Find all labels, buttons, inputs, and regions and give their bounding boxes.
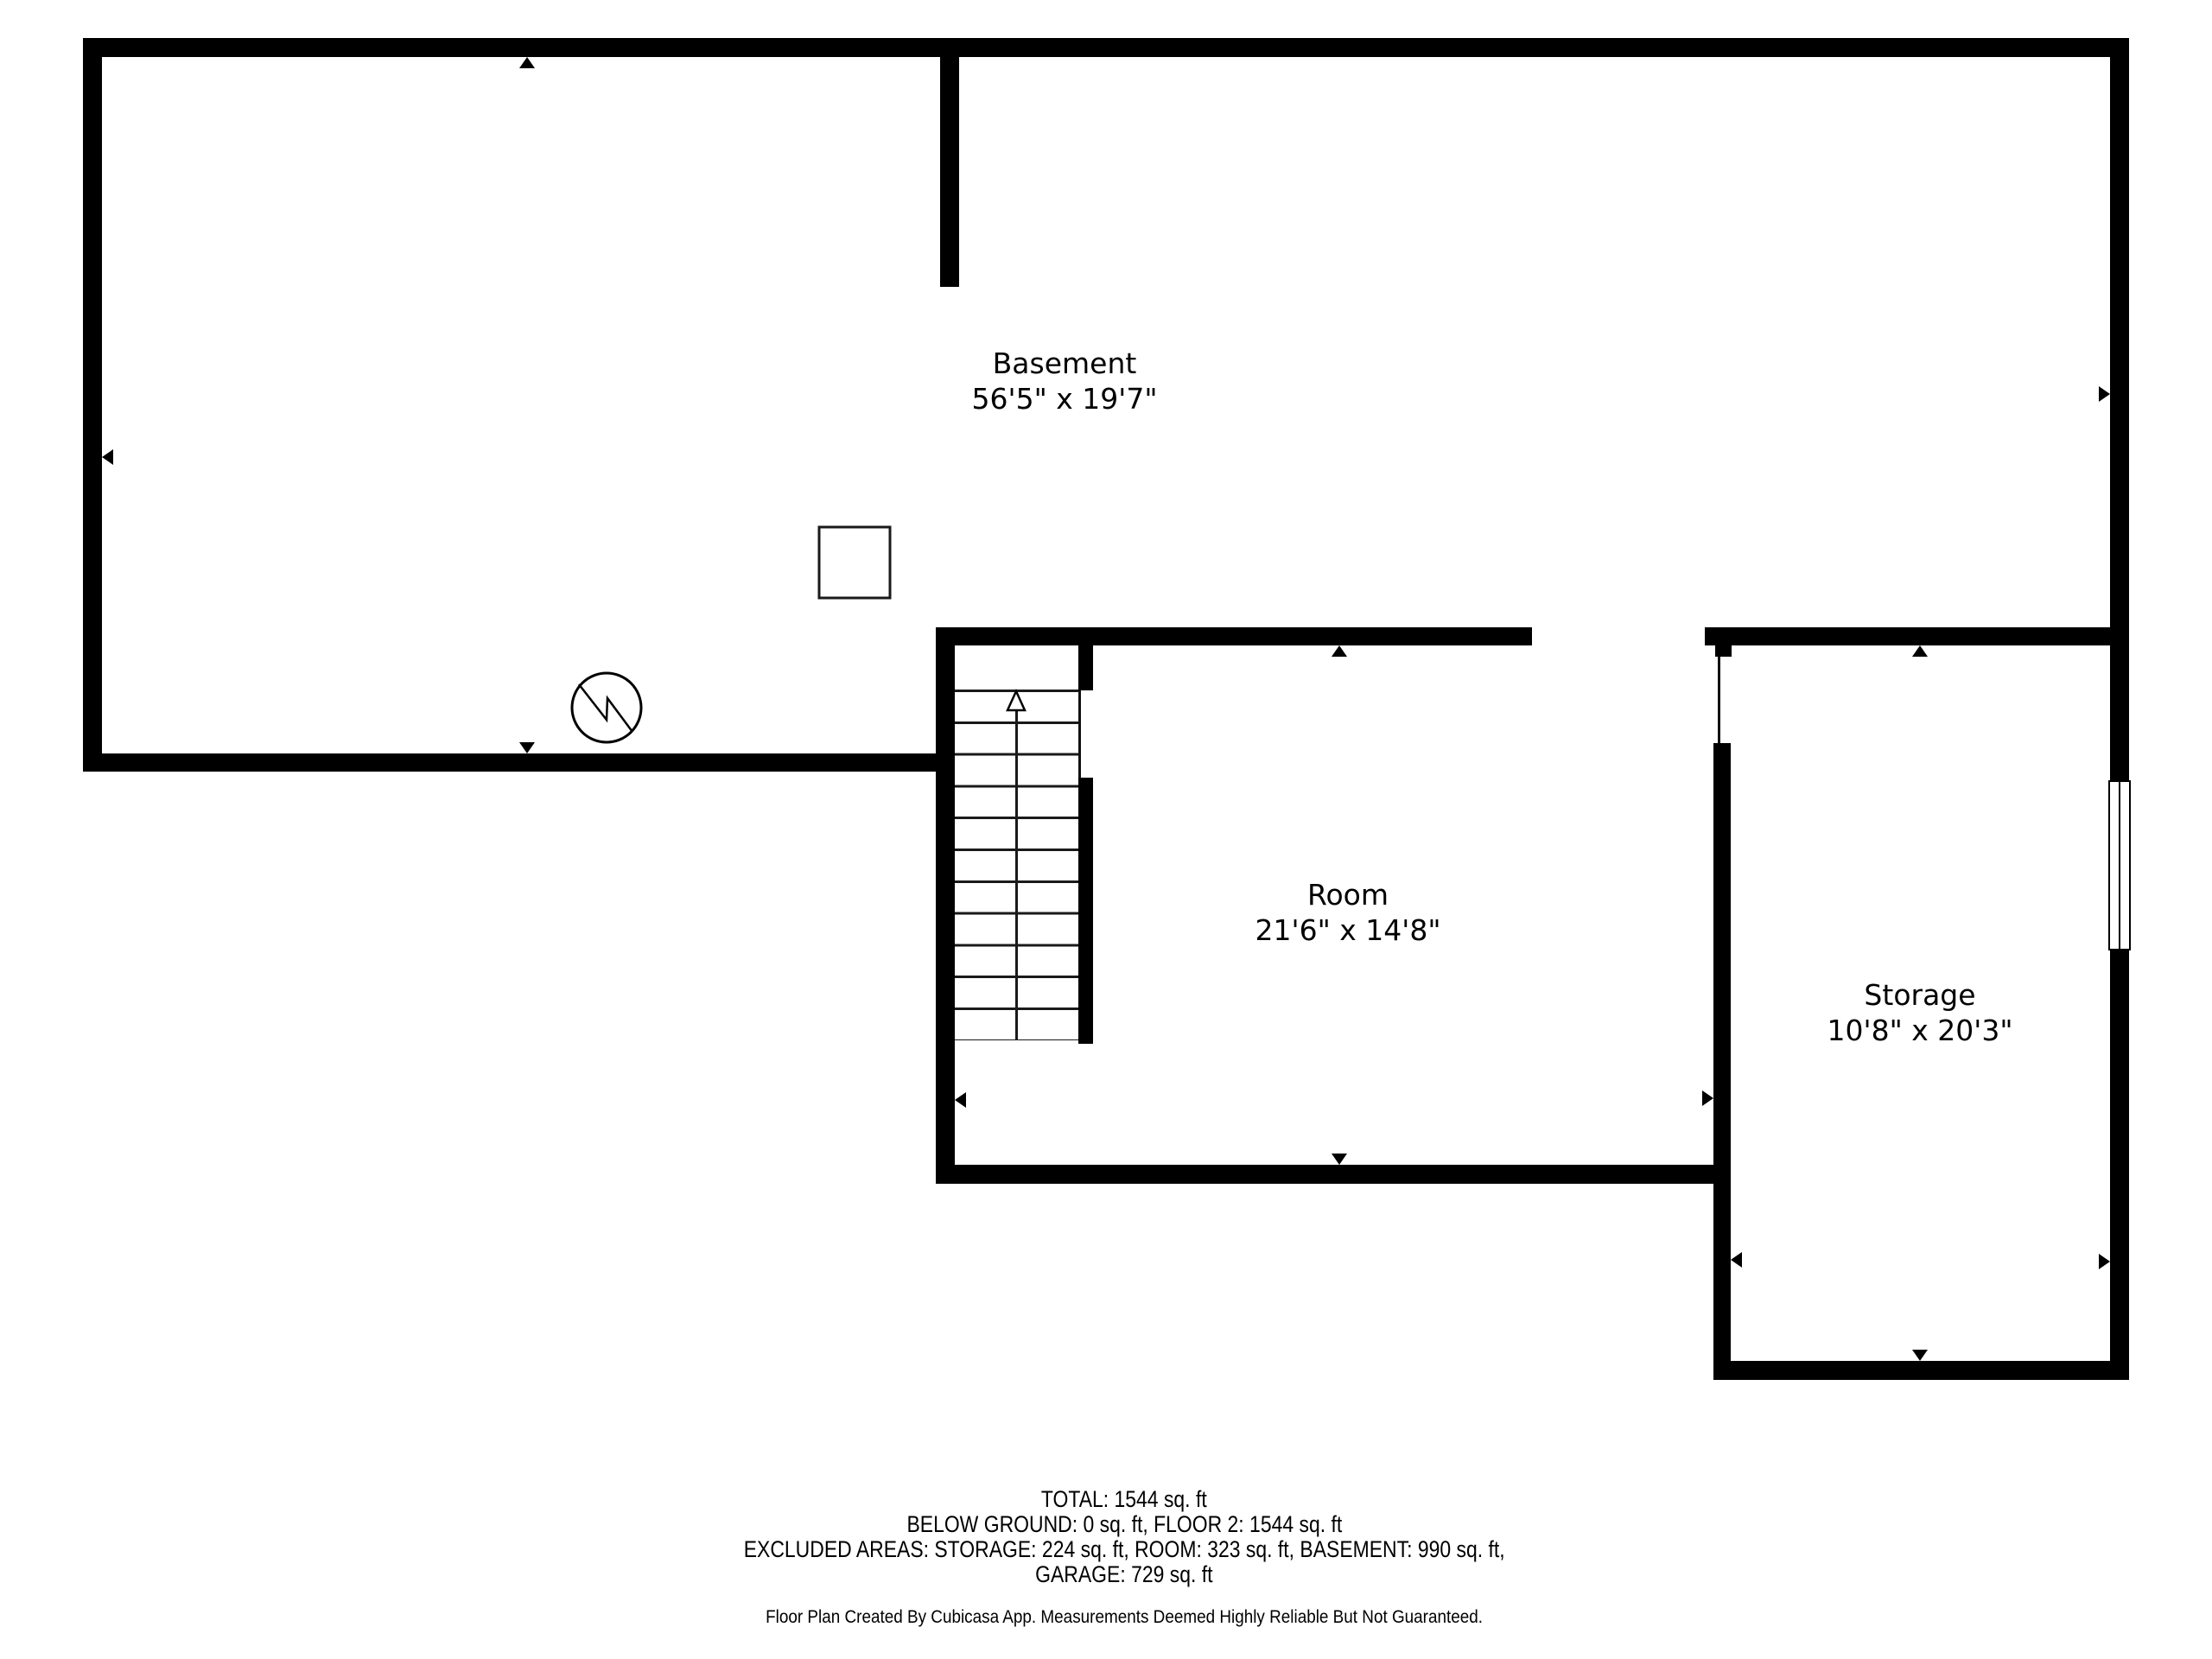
wall-marker-icon-storage-left [1731,1252,1742,1268]
wall-marker-icon-basement-bottom [519,742,535,753]
floor-plan-canvas: Basement 56'5" x 19'7" Room 21'6" x 14'8… [0,0,2212,1659]
attribution-note: Floor Plan Created By Cubicasa App. Meas… [18,1607,2212,1628]
room-label: Room 21'6" x 14'8" [1255,877,1441,948]
wall-outer-left [83,38,102,772]
room-name: Room [1255,877,1441,912]
basement-name: Basement [972,346,1158,381]
wall-marker-icon-basement-right [2099,386,2110,402]
summary-garage-line: GARAGE: 729 sq. ft [18,1562,2212,1587]
wall-marker-icon-storage-bottom [1912,1350,1928,1361]
wall-marker-icon-room-top [1332,645,1347,657]
door-opening-line-stairs [1078,690,1081,778]
wall-marker-icon-storage-right [2099,1254,2110,1269]
summary-floors: BELOW GROUND: 0 sq. ft, FLOOR 2: 1544 sq… [906,1512,1342,1537]
wall-marker-icon-room-right [1702,1090,1713,1106]
wall-outer-right-upper [2110,38,2129,780]
storage-dims: 10'8" x 20'3" [1827,1013,2013,1048]
room-dims: 21'6" x 14'8" [1255,912,1441,948]
wall-basement-bottom [83,753,955,772]
summary-floors-line: BELOW GROUND: 0 sq. ft, FLOOR 2: 1544 sq… [18,1512,2212,1537]
wall-room-bottom [936,1165,1731,1184]
stair-center-line [1015,690,1018,1040]
summary-total: TOTAL: 1544 sq. ft [1041,1487,1207,1512]
wall-marker-icon-basement-left [102,449,113,465]
wall-storage-bottom [1713,1361,2128,1380]
basement-label: Basement 56'5" x 19'7" [972,346,1158,416]
storage-label: Storage 10'8" x 20'3" [1827,977,2013,1048]
window-glass-line [2119,782,2120,949]
water-heater-icon [572,673,641,742]
wall-storage-left [1713,743,1731,1380]
wall-outer-right-lower [2110,950,2129,1380]
attribution-text: Floor Plan Created By Cubicasa App. Meas… [766,1607,1483,1628]
wall-stair-right-lower [1078,778,1093,1044]
basement-dims: 56'5" x 19'7" [972,381,1158,416]
wall-marker-icon-room-bottom [1332,1154,1347,1165]
summary-excluded-line: EXCLUDED AREAS: STORAGE: 224 sq. ft, ROO… [18,1537,2212,1562]
water-heater-zigzag [579,684,632,732]
window-storage-right [2108,780,2131,950]
wall-top-center-stub [940,57,959,287]
wall-room-left [936,627,955,1184]
symbols-overlay [0,0,2212,1659]
wall-stair-right-upper [1078,645,1093,690]
wall-marker-icon-room-left [955,1092,966,1108]
summary-total-line: TOTAL: 1544 sq. ft [18,1487,2212,1512]
fixture-square-icon [819,527,890,598]
door-opening-line-storage [1718,657,1720,743]
summary-excluded: EXCLUDED AREAS: STORAGE: 224 sq. ft, ROO… [744,1537,1505,1562]
wall-outer-top [83,38,2129,57]
wall-marker-icon-storage-top [1912,645,1928,657]
summary-garage: GARAGE: 729 sq. ft [1035,1562,1212,1587]
area-summary: TOTAL: 1544 sq. ft BELOW GROUND: 0 sq. f… [18,1487,2212,1587]
storage-name: Storage [1827,977,2013,1013]
wall-storage-top [1705,627,2110,645]
wall-storage-door-stub [1715,645,1732,657]
wall-room-top [936,627,1532,645]
wall-marker-icon-basement-top [519,57,535,68]
